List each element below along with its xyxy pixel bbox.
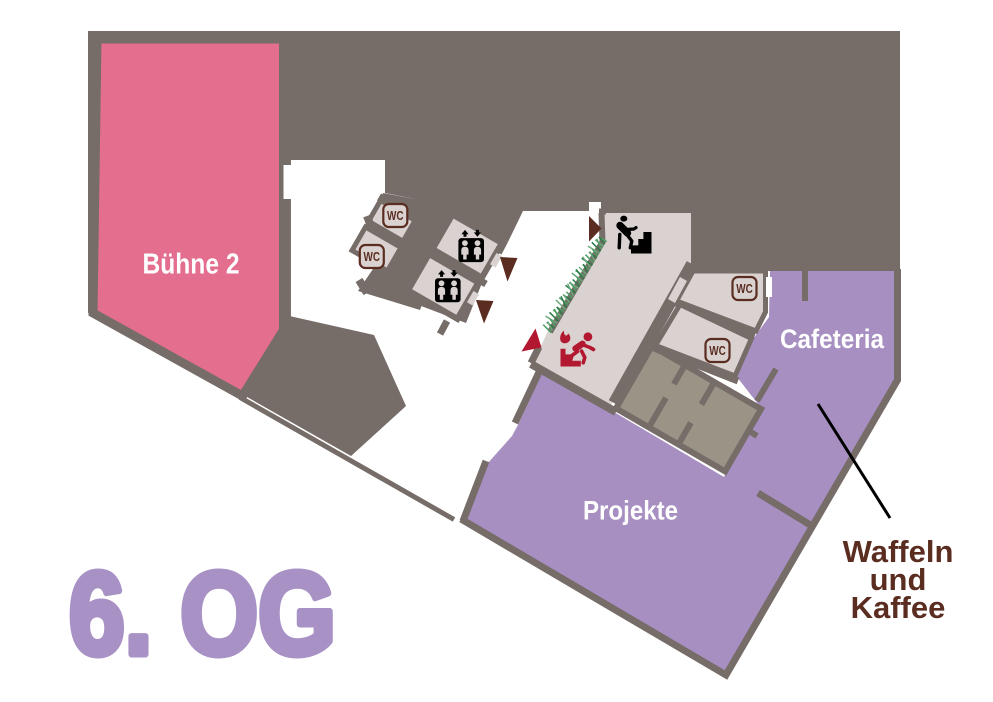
svg-text:WC: WC	[736, 281, 753, 296]
svg-text:WC: WC	[387, 208, 404, 223]
svg-text:Cafeteria: Cafeteria	[780, 324, 885, 354]
svg-text:6. OG: 6. OG	[69, 548, 336, 679]
svg-text:Projekte: Projekte	[583, 496, 678, 526]
svg-text:WC: WC	[364, 249, 381, 264]
svg-text:Kaffee: Kaffee	[851, 590, 946, 625]
svg-text:Bühne 2: Bühne 2	[143, 249, 240, 281]
svg-text:WC: WC	[709, 343, 726, 358]
